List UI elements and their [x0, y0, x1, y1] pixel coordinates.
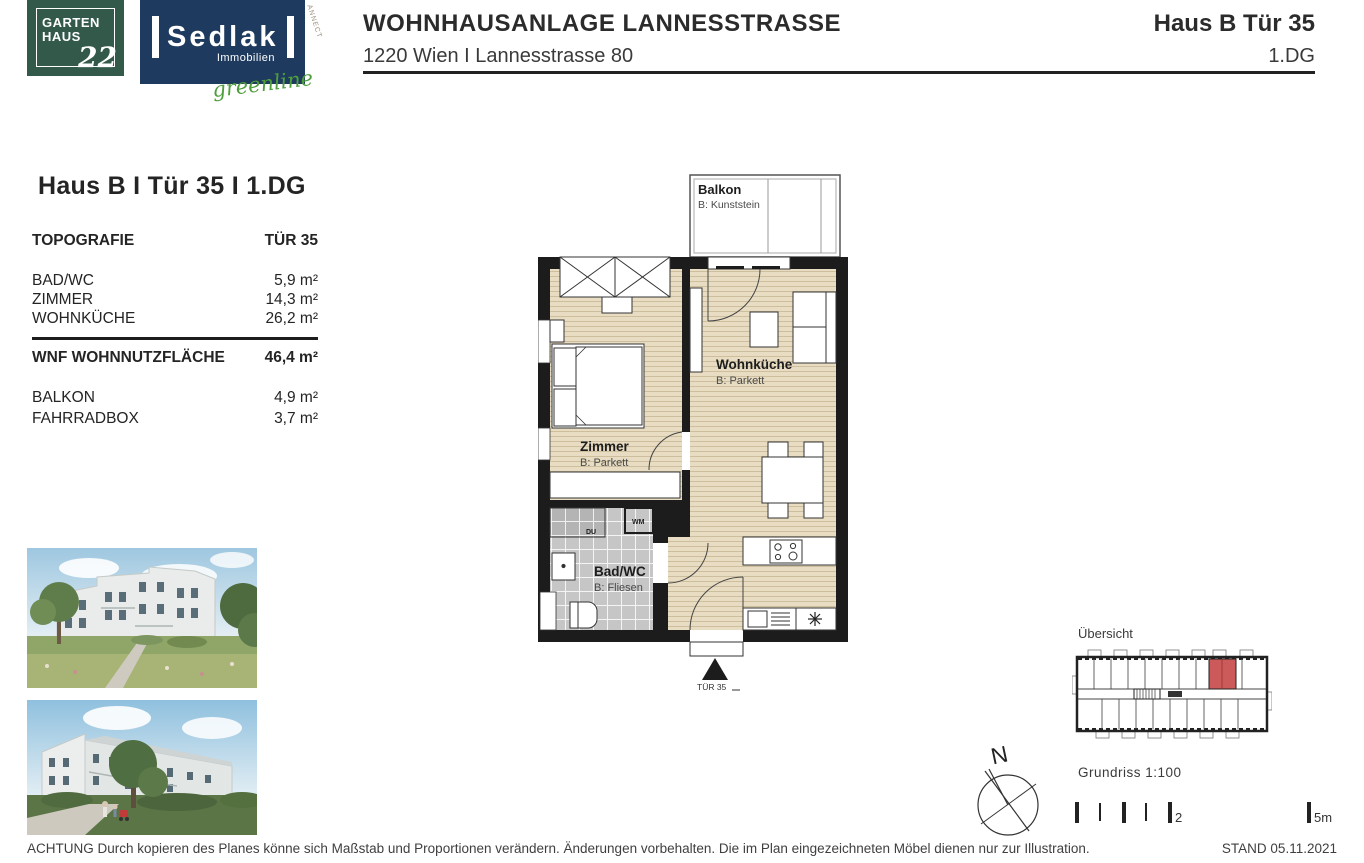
sedlak-logo: Sedlak Immobilien greenline	[140, 0, 305, 84]
scale-tick	[1145, 803, 1147, 821]
kitchen-counter	[743, 537, 836, 565]
table-total-row: WNF WOHNNUTZFLÄCHE 46,4 m²	[32, 348, 318, 367]
footer-stand-date: STAND 05.11.2021	[1037, 841, 1337, 856]
chair	[804, 442, 823, 457]
unit-title: Haus B Tür 35	[963, 10, 1315, 38]
scale-tick	[1307, 802, 1311, 823]
balcony-label: Balkon	[698, 182, 741, 197]
hall-floor	[668, 537, 690, 630]
compass: N	[963, 735, 1053, 845]
shaft	[540, 592, 556, 630]
extra-label: FAHRRADBOX	[32, 408, 139, 429]
badwc-material: B: Fliesen	[594, 582, 643, 594]
room-area: 5,9 m²	[274, 271, 318, 290]
table-row: ZIMMER 14,3 m²	[32, 290, 318, 309]
zimmer-material: B: Parkett	[580, 457, 628, 469]
scale-tick-label-2: 2	[1175, 810, 1182, 825]
zimmer-label: Zimmer	[580, 439, 630, 454]
gartenhaus22-logo: GARTEN HAUS 22	[27, 0, 124, 76]
floor-plan: Balkon B: Kunststein	[538, 172, 848, 697]
nightstand	[550, 320, 564, 342]
freezer-icon	[808, 612, 822, 626]
table-header-row: TOPOGRAFIE TÜR 35	[32, 231, 318, 250]
footer-notice: ACHTUNG Durch kopieren des Planes könne …	[27, 841, 1090, 856]
entry-marker	[702, 658, 728, 680]
room-area: 14,3 m²	[265, 290, 318, 309]
page-subtitle: 1220 Wien I Lannesstrasse 80	[363, 45, 633, 68]
overview-plan	[1072, 648, 1272, 745]
sedlak-subtitle: Immobilien	[217, 52, 275, 64]
table-row: FAHRRADBOX 3,7 m²	[32, 408, 318, 429]
chair	[768, 442, 788, 457]
kitchen-counter-bottom	[743, 608, 836, 630]
scale-tick	[1122, 802, 1126, 823]
sedlak-name: Sedlak	[159, 21, 287, 54]
tall-cabinet	[690, 288, 702, 372]
scale-tick-label-5m: 5m	[1314, 810, 1332, 825]
sum-divider	[32, 337, 318, 340]
wohnkueche-label: Wohnküche	[716, 357, 793, 372]
floor-label: 1.DG	[963, 45, 1315, 68]
window-left-1	[538, 320, 550, 363]
topography-table: TOPOGRAFIE TÜR 35 BAD/WC 5,9 m² ZIMMER 1…	[32, 231, 318, 429]
highlighted-unit	[1209, 659, 1236, 689]
overview-label: Übersicht	[1078, 626, 1133, 641]
plan-sheet: GARTEN HAUS 22 Sedlak Immobilien greenli…	[0, 0, 1364, 863]
window-left-2	[538, 428, 550, 460]
sideboard	[550, 472, 680, 498]
scale-bar: 2 5m	[1072, 802, 1342, 832]
scale-tick	[1099, 803, 1101, 821]
rendering-photo-1	[27, 548, 257, 688]
room-area: 26,2 m²	[265, 309, 318, 328]
sink	[748, 611, 767, 627]
wm-label: WM	[632, 519, 645, 526]
corner-watermark: ANNECT	[305, 4, 322, 39]
wohnkueche-material: B: Parkett	[716, 375, 764, 387]
zimmer-door-opening	[682, 432, 690, 470]
header-rule	[363, 71, 1315, 74]
scale-tick	[1168, 802, 1172, 823]
table-row: BAD/WC 5,9 m²	[32, 271, 318, 290]
page-title: WOHNHAUSANLAGE LANNESSTRASSE	[363, 10, 841, 38]
sofa	[793, 292, 836, 363]
balcony-material: B: Kunststein	[698, 199, 760, 211]
pillow	[554, 348, 576, 386]
extra-area: 4,9 m²	[274, 387, 318, 408]
balcony: Balkon B: Kunststein	[690, 175, 840, 257]
mattress	[576, 347, 642, 425]
pillow	[554, 389, 576, 426]
rendering-photo-2	[27, 700, 257, 835]
scale-label: Grundriss 1:100	[1078, 765, 1182, 780]
dining-table	[762, 457, 823, 503]
stove	[770, 540, 802, 563]
entry-label: TÜR 35	[697, 682, 727, 692]
du-label: DU	[586, 529, 596, 536]
logo-garten-number: 22	[78, 41, 117, 74]
extra-area: 3,7 m²	[274, 408, 318, 429]
table-row: WOHNKÜCHE 26,2 m²	[32, 309, 318, 328]
chair	[804, 503, 823, 518]
unit-heading: Haus B I Tür 35 I 1.DG	[38, 172, 306, 201]
toilet	[570, 602, 597, 628]
col-topografie: TOPOGRAFIE	[32, 231, 134, 250]
room-label: BAD/WC	[32, 271, 94, 290]
table-row: BALKON 4,9 m²	[32, 387, 318, 408]
shower	[550, 508, 605, 537]
badwc-label: Bad/WC	[594, 564, 646, 579]
room-label: ZIMMER	[32, 290, 93, 309]
logo-garten-text: GARTEN HAUS	[42, 16, 100, 44]
washbasin	[552, 553, 575, 580]
compass-n: N	[988, 740, 1010, 769]
sedlak-greenline: greenline	[211, 66, 314, 102]
entry-opening	[690, 630, 743, 642]
sedlak-bar-left	[152, 16, 159, 58]
extra-label: BALKON	[32, 387, 95, 408]
chair	[768, 503, 788, 518]
bad-door-opening	[653, 543, 668, 583]
sedlak-bar-right	[287, 16, 294, 58]
stairwell	[1134, 689, 1160, 699]
col-tuer35: TÜR 35	[265, 231, 318, 250]
doormat	[690, 642, 743, 656]
bed	[552, 344, 644, 428]
scale-tick	[1075, 802, 1079, 823]
total-area: 46,4 m²	[265, 348, 318, 367]
coffee-table	[750, 312, 778, 347]
logo-garten-line1: GARTEN	[42, 16, 100, 30]
total-label: WNF WOHNNUTZFLÄCHE	[32, 348, 225, 367]
room-label: WOHNKÜCHE	[32, 309, 135, 328]
